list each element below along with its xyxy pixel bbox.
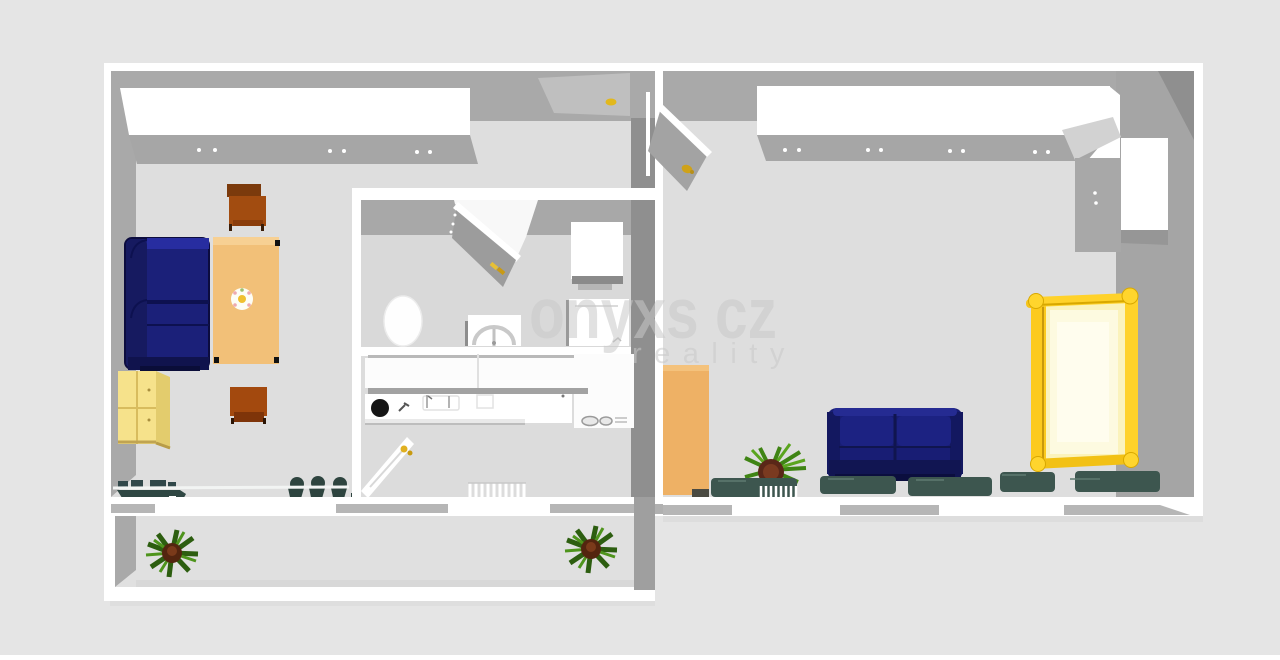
svg-text:reality: reality (632, 338, 797, 370)
